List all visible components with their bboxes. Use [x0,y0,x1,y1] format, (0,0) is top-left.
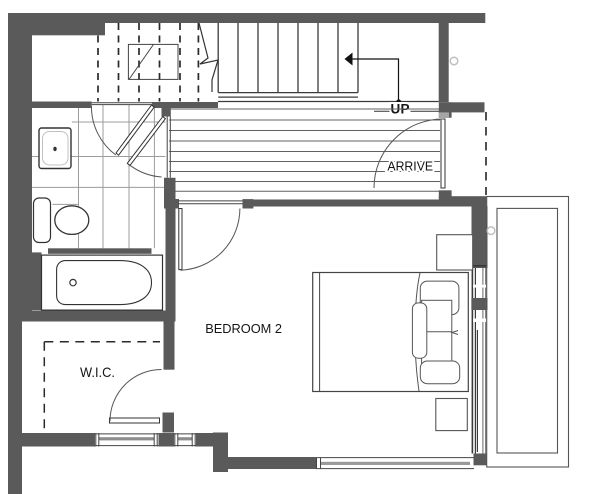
svg-text:ARRIVE: ARRIVE [387,158,433,174]
svg-text:BEDROOM 2: BEDROOM 2 [205,321,282,336]
svg-text:W.I.C.: W.I.C. [80,365,115,380]
